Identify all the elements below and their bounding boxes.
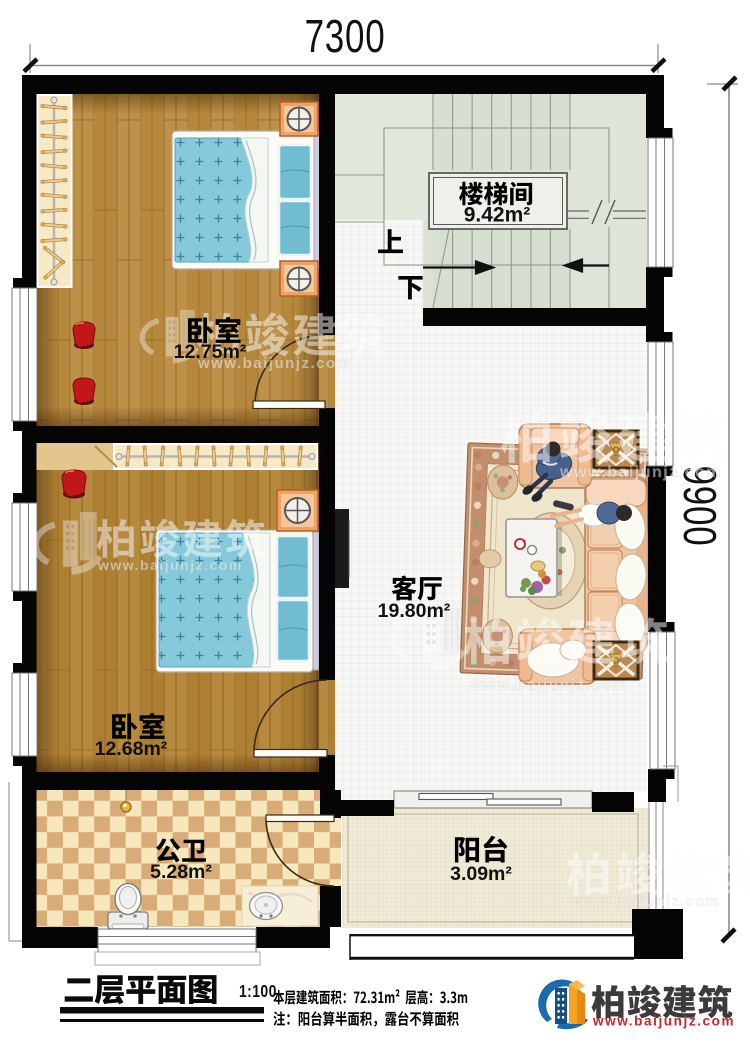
svg-text:www.baijunjz.com: www.baijunjz.com [592, 1014, 735, 1029]
svg-text:www.baijunjz.com: www.baijunjz.com [570, 894, 720, 910]
svg-text:7300: 7300 [305, 10, 386, 62]
svg-text:www.baijunjz.com: www.baijunjz.com [559, 464, 722, 481]
svg-text:www.baijunjz.com: www.baijunjz.com [469, 677, 628, 694]
svg-text:5.28m²: 5.28m² [150, 861, 212, 883]
svg-text:12.75m²: 12.75m² [174, 341, 247, 363]
svg-text:9.42m²: 9.42m² [464, 204, 531, 227]
svg-text:19.80m²: 19.80m² [378, 600, 451, 622]
svg-text:1:100: 1:100 [239, 983, 277, 1002]
svg-text:www.baijunjz.com: www.baijunjz.com [97, 557, 243, 573]
svg-text:12.68m²: 12.68m² [95, 738, 168, 760]
svg-text:3.09m²: 3.09m² [450, 863, 512, 885]
